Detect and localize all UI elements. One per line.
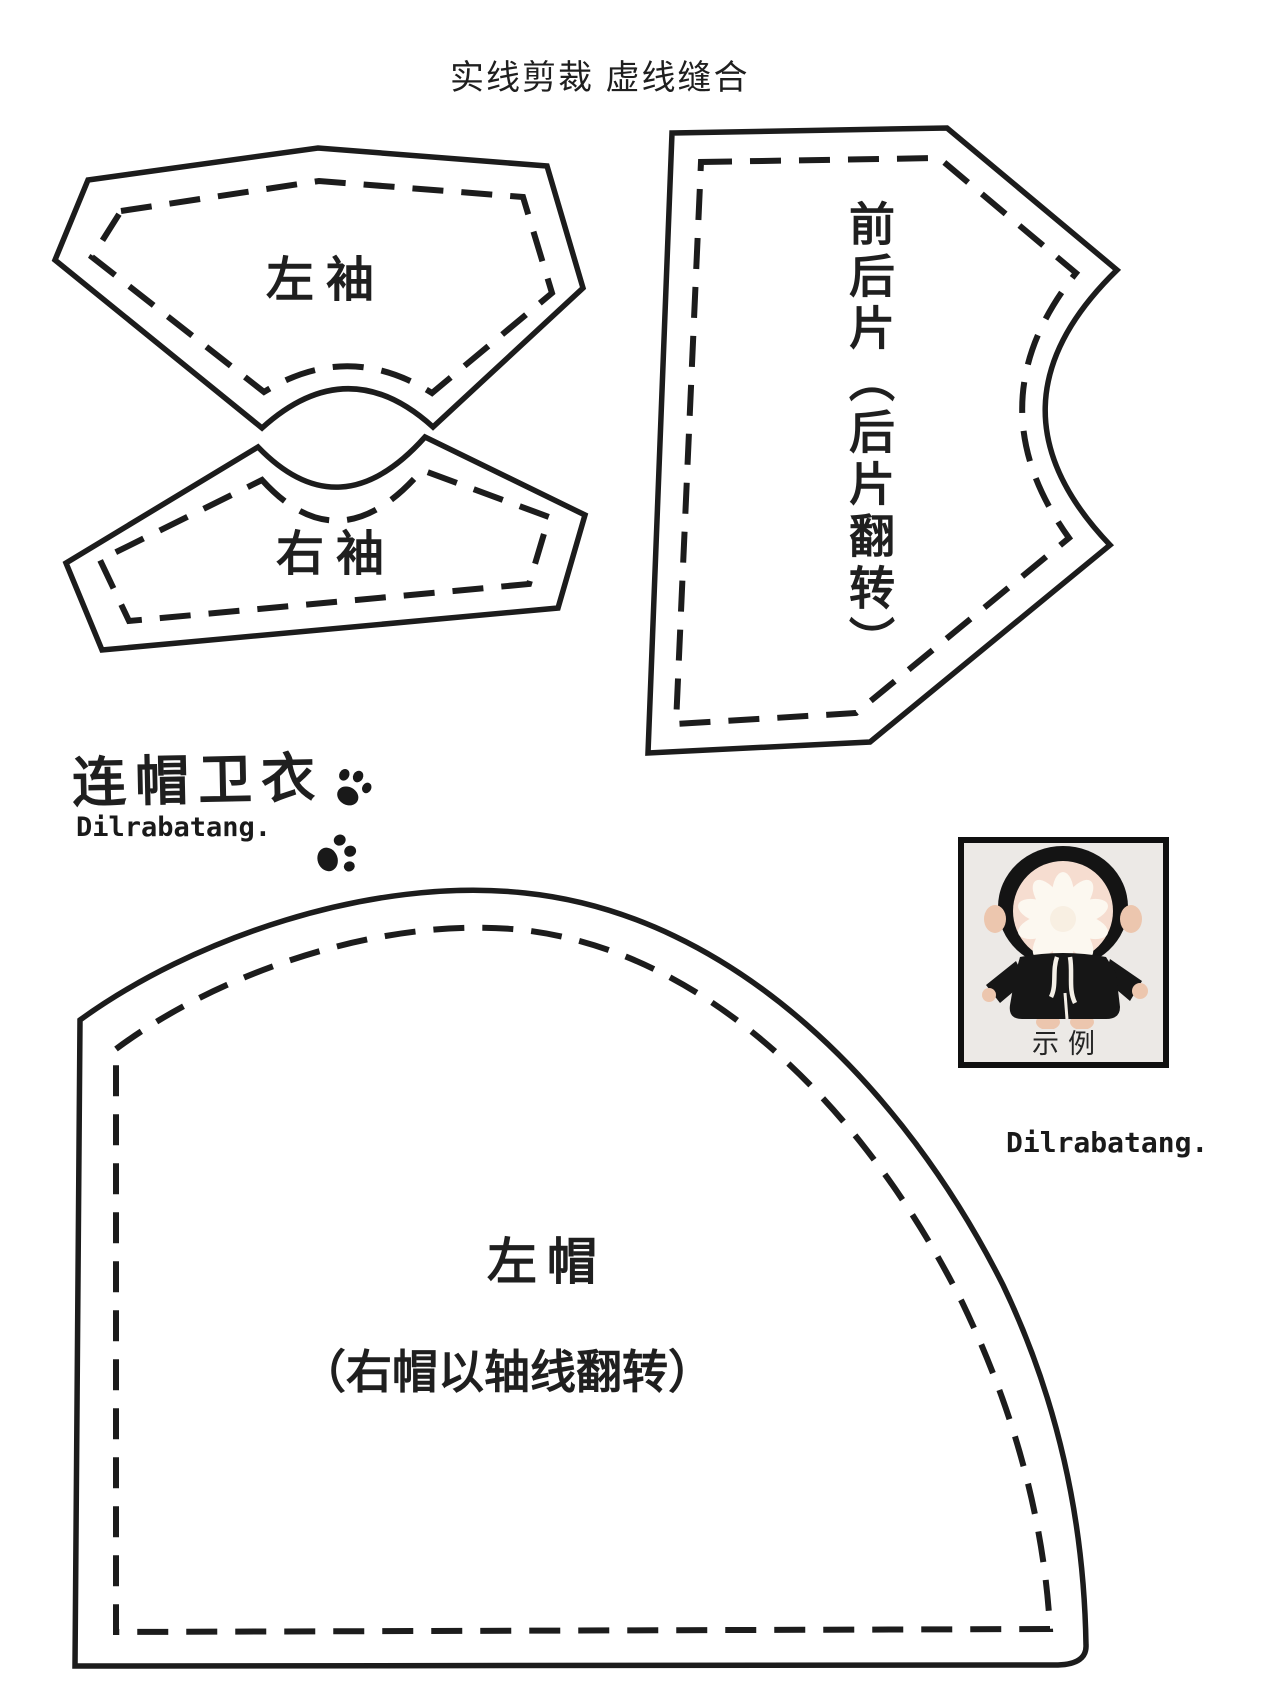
hood-sublabel: （右帽以轴线翻转） [300, 1336, 714, 1402]
artist-signature: Dilrabatang. [76, 812, 271, 843]
doll-ear [984, 905, 1006, 933]
doll-hand [982, 988, 996, 1002]
page-title: 实线剪裁 虚线缝合 [450, 50, 749, 99]
example-photo-box: 示例 [958, 837, 1169, 1068]
front-back-label: 前后片（后片翻转） [836, 200, 902, 720]
doll-hand [1132, 983, 1148, 999]
hood-label: 左帽 [487, 1222, 607, 1294]
left-sleeve-label: 左袖 [266, 240, 386, 310]
artist-signature: Dilrabatang. [1006, 1126, 1208, 1159]
right-sleeve-label: 右袖 [276, 514, 396, 584]
example-photo-caption: 示例 [1023, 1029, 1104, 1059]
sewing-pattern-sheet: 实线剪裁 虚线缝合 左袖 右袖 前后片（后片翻转） 左帽 （右帽以轴线翻转） 连… [0, 0, 1280, 1707]
paw-print-icon [328, 763, 377, 812]
doll-example-photo [964, 843, 1163, 1029]
paw-print-icon [312, 831, 363, 881]
pattern-name: 连帽卫衣 [71, 733, 325, 817]
doll-ear [1120, 905, 1142, 933]
